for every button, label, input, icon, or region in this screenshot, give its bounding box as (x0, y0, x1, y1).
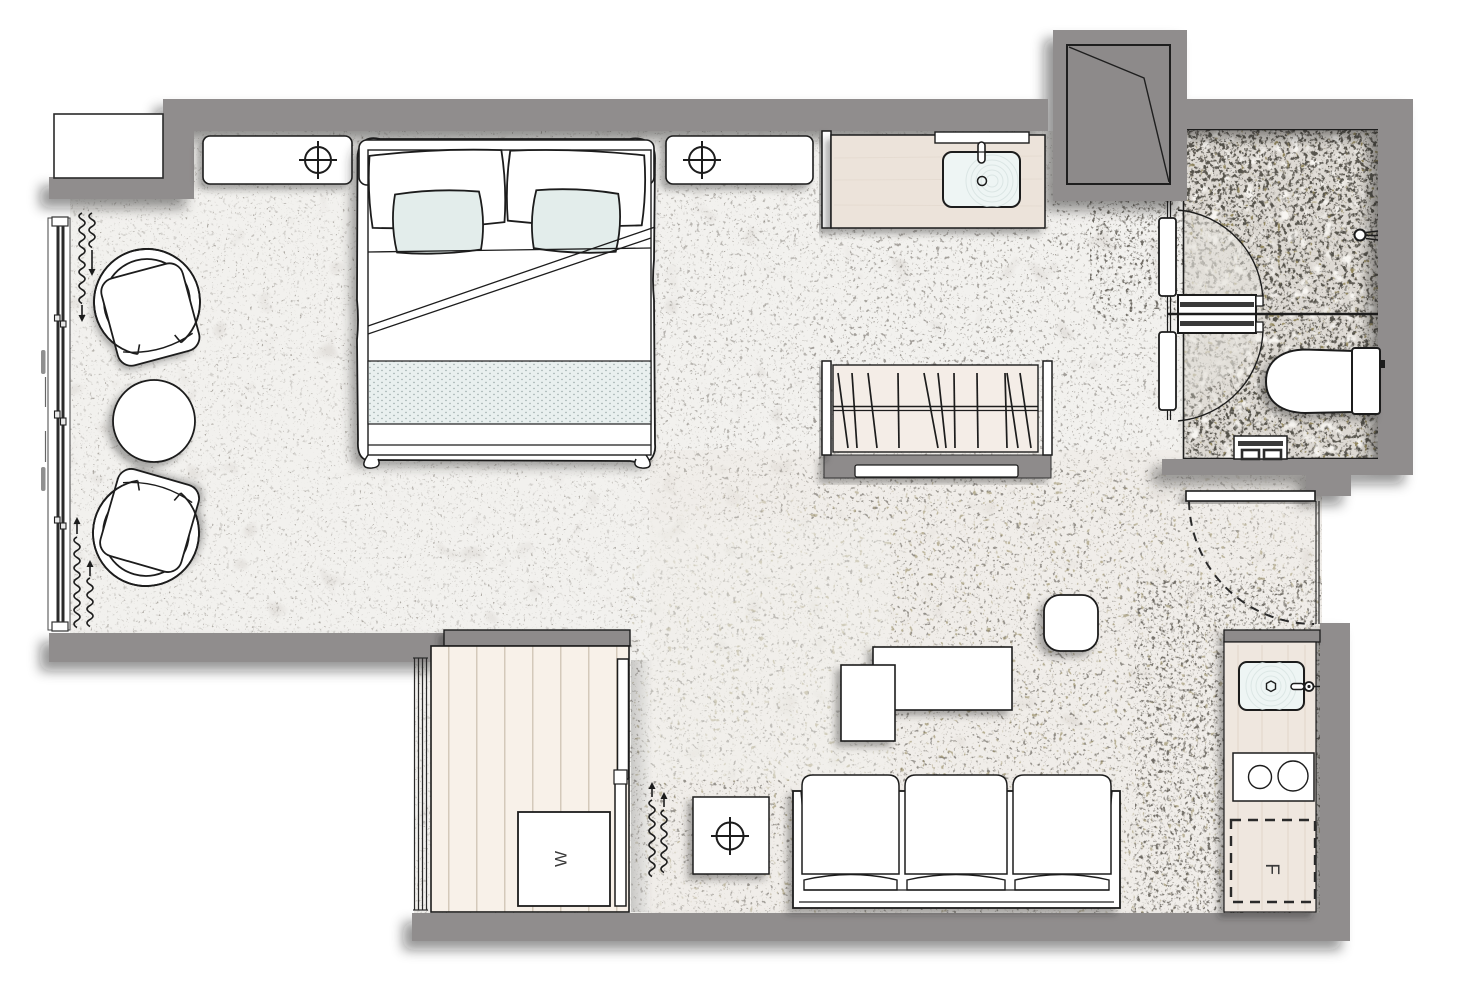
svg-text:W: W (551, 851, 570, 867)
svg-text:F: F (1261, 863, 1282, 875)
